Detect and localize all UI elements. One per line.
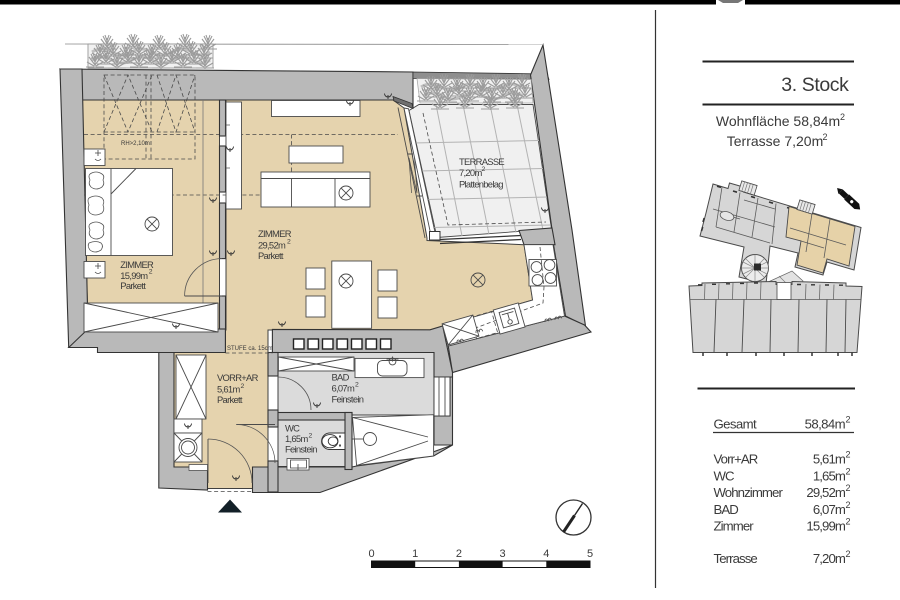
svg-text:3: 3 (500, 548, 506, 560)
svg-text:2: 2 (846, 549, 851, 559)
svg-text:ZIMMER: ZIMMER (258, 228, 292, 239)
svg-text:Plattenbelag: Plattenbelag (459, 178, 503, 189)
svg-text:Parkett: Parkett (217, 394, 243, 405)
svg-text:0: 0 (368, 548, 374, 560)
svg-text:2: 2 (456, 548, 462, 560)
svg-text:1: 1 (412, 548, 418, 560)
svg-text:Zimmer: Zimmer (714, 519, 755, 534)
svg-text:Terrasse: Terrasse (714, 551, 758, 566)
svg-text:BAD: BAD (332, 371, 350, 382)
svg-text:Gesamt: Gesamt (714, 417, 758, 432)
svg-text:Parkett: Parkett (120, 280, 146, 291)
svg-text:Vorr+AR: Vorr+AR (714, 452, 758, 467)
svg-text:2: 2 (846, 450, 851, 460)
svg-text:7,20m: 7,20m (459, 167, 482, 178)
svg-text:15,99m: 15,99m (806, 519, 846, 534)
svg-text:4: 4 (543, 548, 549, 560)
svg-text:3. Stock: 3. Stock (781, 74, 849, 96)
svg-text:2: 2 (846, 483, 851, 493)
svg-text:Feinstein: Feinstein (332, 393, 364, 404)
svg-text:29,52m: 29,52m (258, 240, 286, 251)
svg-text:5,61m: 5,61m (217, 384, 240, 395)
svg-text:Parkett: Parkett (258, 250, 284, 261)
svg-text:6,07m: 6,07m (332, 382, 355, 393)
svg-text:5: 5 (587, 548, 593, 560)
svg-text:6,07m: 6,07m (813, 502, 846, 517)
svg-text:STUFE ca. 15cm: STUFE ca. 15cm (227, 346, 273, 352)
svg-text:VORR+AR: VORR+AR (217, 372, 259, 383)
svg-text:Terrasse 7,20m: Terrasse 7,20m (727, 133, 823, 149)
svg-text:1,65m: 1,65m (285, 433, 308, 444)
svg-text:58,84m: 58,84m (805, 417, 846, 432)
svg-text:Wohnzimmer: Wohnzimmer (714, 485, 784, 500)
svg-text:29,52m: 29,52m (806, 485, 846, 500)
svg-text:WC: WC (714, 468, 736, 483)
svg-text:RH>2,10m: RH>2,10m (121, 141, 150, 147)
svg-text:WC: WC (285, 422, 300, 433)
svg-text:Feinstein: Feinstein (285, 444, 317, 455)
svg-text:2: 2 (846, 415, 851, 425)
svg-text:2: 2 (840, 112, 845, 122)
svg-text:2: 2 (823, 132, 828, 142)
svg-text:Wohnfläche 58,84m: Wohnfläche 58,84m (716, 113, 840, 129)
svg-text:2: 2 (846, 466, 851, 476)
svg-text:1,65m: 1,65m (813, 468, 846, 483)
svg-text:5,61m: 5,61m (813, 452, 846, 467)
svg-text:BAD: BAD (714, 502, 739, 517)
svg-text:7,20m: 7,20m (813, 551, 846, 566)
svg-text:2: 2 (846, 517, 851, 527)
svg-text:2: 2 (846, 500, 851, 510)
